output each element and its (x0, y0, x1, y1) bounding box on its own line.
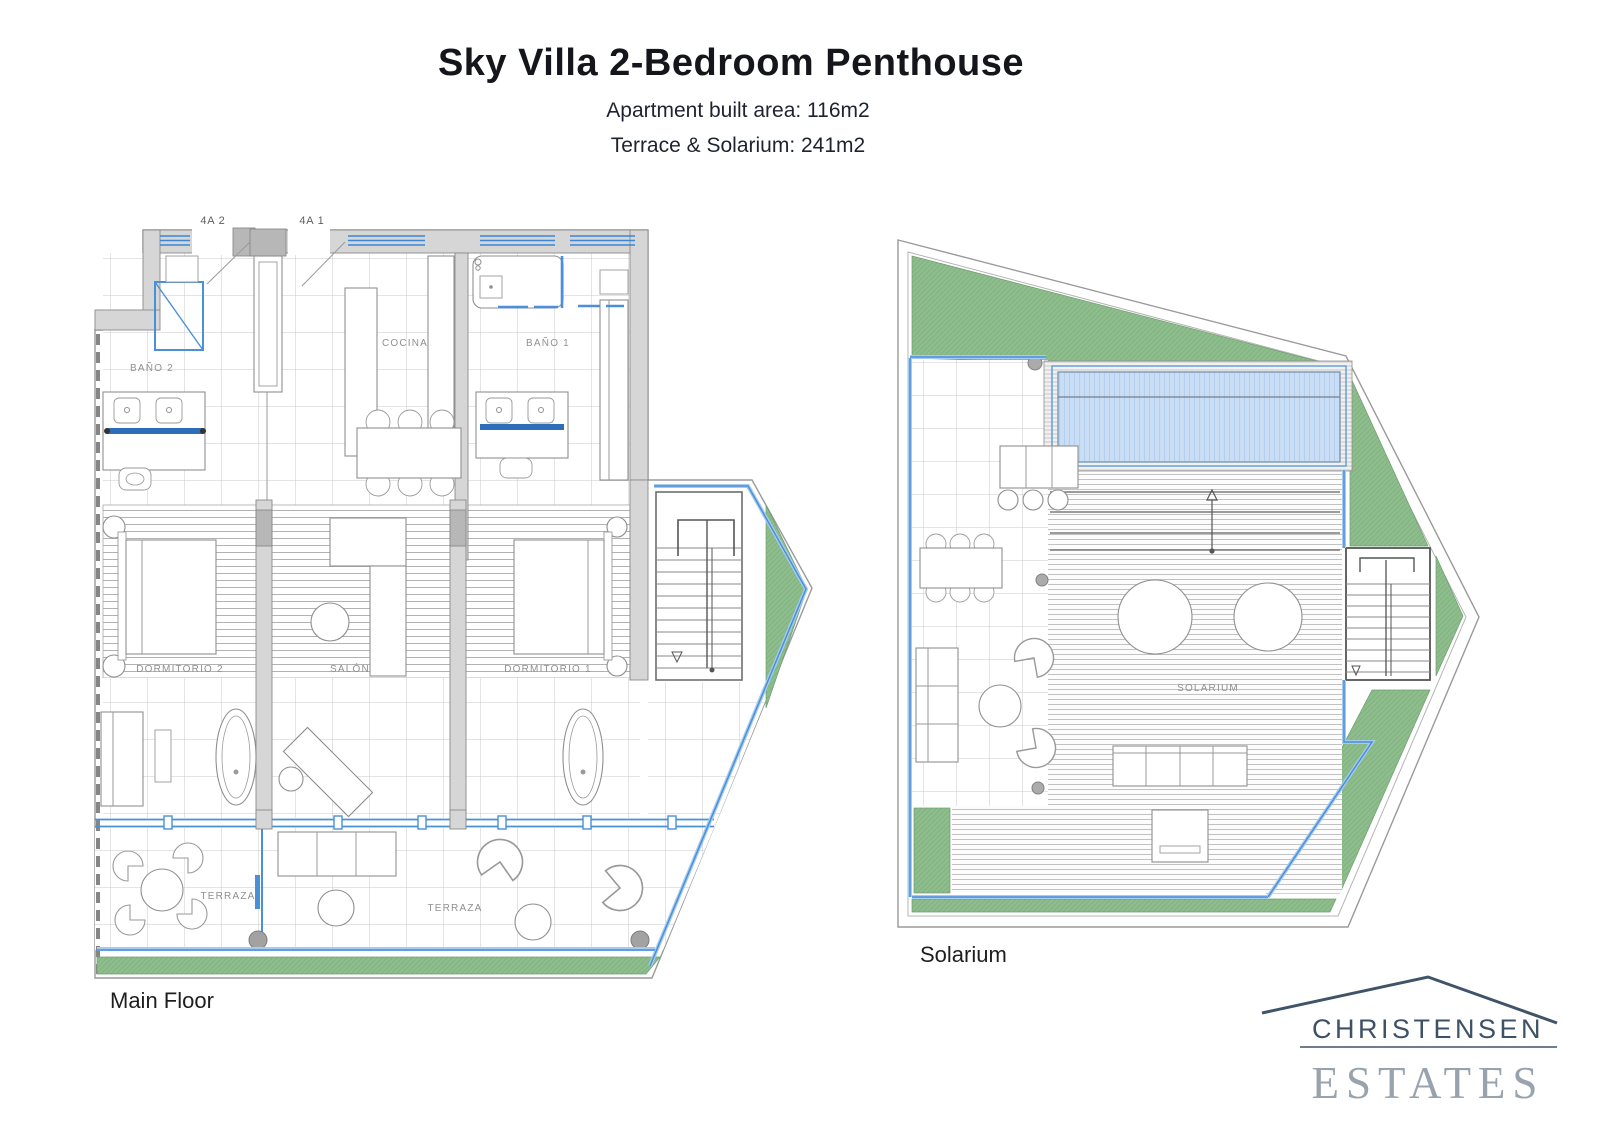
toilet-bano1 (500, 458, 532, 478)
subtitle-terrace-solarium: Terrace & Solarium: 241m2 (611, 134, 865, 157)
solarium-dining-set (920, 534, 1002, 602)
main-floor-plan: 4A 2 4A 1 (95, 215, 812, 1013)
terrace-table (141, 869, 183, 911)
dining-table-main (357, 410, 461, 496)
bed-1 (514, 540, 604, 654)
logo-type: ESTATES (1312, 1058, 1545, 1108)
bedroom-1 (514, 517, 627, 676)
staircase-solarium (1346, 548, 1430, 680)
swimming-pool (1044, 361, 1352, 471)
room-label-terraza-2: TERRAZA (427, 903, 482, 914)
room-label-dormitorio2: DORMITORIO 2 (136, 664, 224, 675)
room-label-bano1: BAÑO 1 (526, 336, 570, 349)
main-floor-caption: Main Floor (110, 988, 214, 1013)
room-label-terraza-1: TERRAZA (200, 891, 255, 902)
round-daybed-1 (1118, 580, 1192, 654)
deck-storage (1152, 810, 1208, 862)
room-label-dormitorio1: DORMITORIO 1 (504, 664, 592, 675)
floorplan-sheet: Sky Villa 2-Bedroom Penthouse Apartment … (0, 0, 1600, 1131)
room-label-solarium: SOLARIUM (1177, 683, 1239, 694)
room-label-cocina: COCINA (382, 338, 428, 349)
room-label-salon: SALÓN (330, 662, 370, 675)
door-label-4a1: 4A 1 (299, 215, 324, 227)
page-title: Sky Villa 2-Bedroom Penthouse (438, 42, 1024, 84)
outdoor-sofa (101, 712, 143, 806)
solarium-outdoor-kitchen (998, 446, 1078, 510)
bed-2 (126, 540, 216, 654)
sofa-salon (330, 518, 406, 566)
solarium-caption: Solarium (920, 942, 1007, 967)
brand-logo: CHRISTENSEN ESTATES (1262, 977, 1557, 1108)
door-label-4a2: 4A 2 (200, 215, 225, 227)
logo-name: CHRISTENSEN (1312, 1014, 1544, 1044)
staircase-main (656, 492, 742, 680)
terrace-bench (278, 832, 396, 876)
salon-table (311, 603, 349, 641)
subtitle-built-area: Apartment built area: 116m2 (606, 99, 869, 122)
round-daybed-2 (1234, 583, 1302, 651)
room-label-bano2: BAÑO 2 (130, 361, 174, 374)
toilet-bano2 (119, 468, 151, 490)
outdoor-tub-left (216, 709, 256, 805)
header: Sky Villa 2-Bedroom Penthouse Apartment … (438, 42, 1024, 157)
planter-south (97, 957, 660, 974)
bedroom-2 (103, 516, 216, 677)
outdoor-tub-right (563, 709, 603, 805)
floorplan-canvas: Sky Villa 2-Bedroom Penthouse Apartment … (0, 0, 1600, 1131)
solarium-plan: SOLARIUM Solarium (898, 240, 1479, 967)
